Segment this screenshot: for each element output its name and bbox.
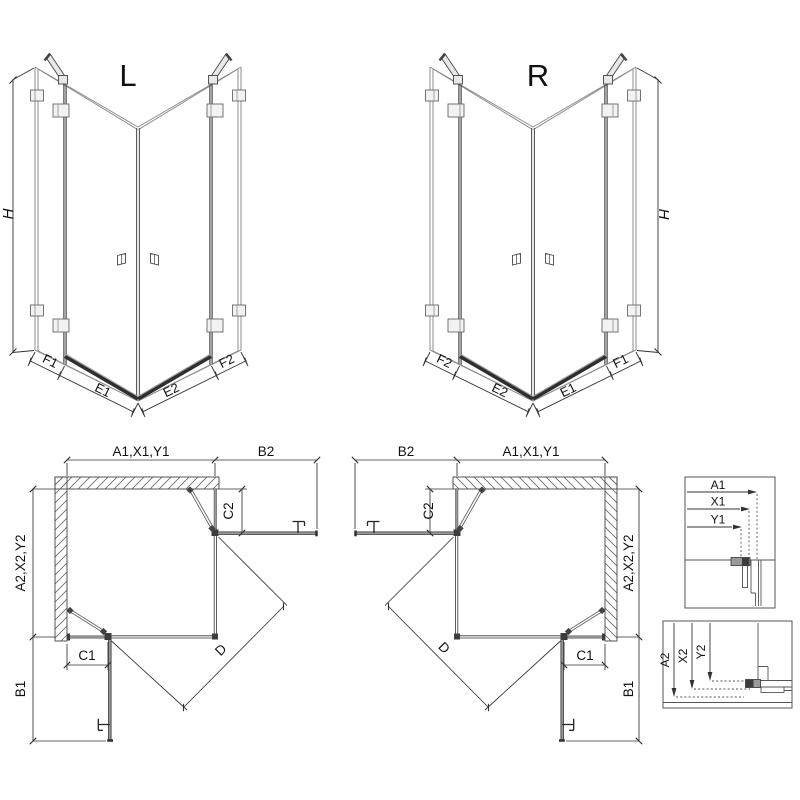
plan-right-b1-dim: B1 — [621, 681, 636, 698]
detail-y2-label: Y2 — [694, 644, 708, 659]
plan-left-width-dim: A1,X1,Y1 — [112, 444, 169, 459]
plan-left-b2-dim: B2 — [258, 444, 275, 459]
technical-drawing-sheet: L H F1 E1 E2 F2 R H F2 E2 E1 F1 A1,X1,Y1… — [0, 0, 800, 800]
plan-left-c2-dim: C2 — [221, 502, 236, 519]
plan-right-depth-dim: A2,X2,Y2 — [621, 534, 636, 591]
plan-right-c2-dim: C2 — [421, 502, 436, 519]
detail-x2-label: X2 — [676, 648, 690, 663]
iso-left-label: L — [119, 58, 136, 93]
iso-right-height-dim: H — [655, 209, 672, 220]
iso-right-label: R — [527, 58, 549, 93]
detail-y1-label: Y1 — [711, 513, 726, 527]
plan-right-width-dim: A1,X1,Y1 — [502, 444, 559, 459]
detail-a1-label: A1 — [711, 478, 726, 492]
iso-left-height-dim: H — [0, 208, 17, 219]
plan-left-b1-dim: B1 — [13, 681, 28, 698]
plan-right-c1-dim: C1 — [576, 648, 593, 663]
plan-left-depth-dim: A2,X2,Y2 — [13, 534, 28, 591]
plan-left-c1-dim: C1 — [78, 648, 95, 663]
drawing-background — [0, 0, 800, 800]
detail-x1-label: X1 — [711, 495, 726, 509]
detail-a2-label: A2 — [658, 652, 672, 667]
shower-enclosure-drawing: L H F1 E1 E2 F2 R H F2 E2 E1 F1 A1,X1,Y1… — [0, 0, 800, 800]
plan-right-b2-dim: B2 — [398, 444, 415, 459]
